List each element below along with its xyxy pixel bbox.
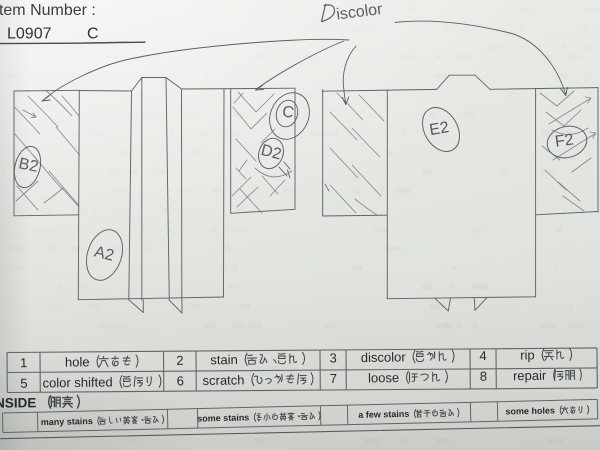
svg-text:093: 093 (422, 284, 433, 291)
svg-text:280: 280 (16, 112, 27, 119)
svg-text:5140: 5140 (72, 208, 87, 215)
svg-text:431: 431 (2, 265, 13, 272)
svg-text:1: 1 (65, 54, 69, 61)
svg-text:08: 08 (79, 265, 87, 272)
svg-text:1222: 1222 (324, 131, 339, 138)
svg-text:116: 116 (198, 131, 209, 138)
svg-text:D2: D2 (259, 142, 283, 163)
svg-text:1803: 1803 (107, 169, 122, 176)
svg-text:some stains: some stains (197, 412, 249, 423)
svg-text:5: 5 (170, 150, 174, 157)
svg-text:9: 9 (562, 45, 566, 52)
svg-text:004: 004 (464, 112, 475, 119)
svg-text:1276: 1276 (457, 54, 472, 61)
svg-text:8017: 8017 (156, 169, 171, 176)
svg-text:834: 834 (44, 227, 55, 234)
svg-text:559: 559 (107, 54, 118, 61)
svg-text:8375: 8375 (436, 438, 451, 445)
svg-text:6283: 6283 (548, 438, 563, 445)
svg-text:0: 0 (359, 265, 363, 272)
svg-text:47: 47 (499, 169, 507, 176)
svg-text:634: 634 (254, 438, 265, 445)
svg-text:61: 61 (93, 208, 101, 215)
svg-text:9: 9 (450, 284, 454, 291)
svg-text:Item Number :: Item Number : (0, 2, 96, 19)
svg-text:INSIDE: INSIDE (0, 395, 36, 410)
svg-text:A2: A2 (93, 244, 116, 265)
svg-text:72: 72 (233, 131, 241, 138)
svg-text:33: 33 (79, 284, 87, 291)
svg-text:2: 2 (569, 304, 573, 311)
svg-text:1: 1 (20, 355, 27, 370)
svg-text:170: 170 (191, 304, 202, 311)
svg-text:96: 96 (93, 92, 101, 99)
svg-text:47: 47 (51, 246, 59, 253)
svg-text:8: 8 (135, 169, 139, 176)
svg-text:discolor: discolor (361, 349, 407, 365)
svg-text:5075: 5075 (303, 54, 318, 61)
svg-text:hole: hole (65, 354, 90, 369)
svg-text:7183: 7183 (86, 304, 101, 311)
svg-text:26: 26 (555, 227, 563, 234)
svg-text:5: 5 (2, 169, 6, 176)
svg-text:811: 811 (401, 188, 412, 195)
svg-text:656: 656 (569, 54, 580, 61)
svg-text:516: 516 (324, 323, 335, 330)
svg-text:F2: F2 (554, 131, 575, 150)
svg-text:B2: B2 (17, 155, 40, 176)
svg-text:a few stains: a few stains (358, 409, 409, 420)
svg-text:9: 9 (177, 265, 181, 272)
svg-text:42: 42 (121, 188, 129, 195)
svg-text:0913: 0913 (583, 7, 598, 14)
svg-text:L0907: L0907 (7, 26, 52, 43)
svg-text:335: 335 (471, 227, 482, 234)
svg-text:8288: 8288 (128, 265, 143, 272)
svg-text:718: 718 (240, 304, 251, 311)
svg-text:55: 55 (352, 188, 360, 195)
svg-text:7617: 7617 (226, 284, 241, 291)
svg-text:2: 2 (401, 131, 405, 138)
svg-text:9868: 9868 (191, 150, 206, 157)
svg-text:87: 87 (429, 112, 437, 119)
svg-text:7: 7 (330, 371, 337, 386)
svg-text:6426: 6426 (114, 323, 129, 330)
svg-text:4628: 4628 (37, 208, 52, 215)
svg-text:7: 7 (240, 208, 244, 215)
svg-text:253: 253 (184, 112, 195, 119)
svg-text:13: 13 (401, 438, 409, 445)
svg-text:0342: 0342 (401, 54, 416, 61)
svg-text:74: 74 (450, 265, 458, 272)
svg-text:7: 7 (471, 150, 475, 157)
svg-text:color shifted: color shifted (42, 374, 112, 390)
svg-text:E2: E2 (428, 119, 450, 139)
svg-text:iscolor: iscolor (335, 1, 384, 24)
svg-text:C: C (87, 26, 99, 43)
svg-text:27: 27 (72, 438, 80, 445)
svg-text:821: 821 (443, 26, 454, 33)
svg-text:96: 96 (16, 265, 24, 272)
svg-text:289: 289 (156, 73, 167, 80)
svg-text:5: 5 (2, 92, 6, 99)
svg-text:989: 989 (422, 169, 433, 176)
svg-text:393: 393 (233, 112, 244, 119)
svg-text:651: 651 (205, 323, 216, 330)
svg-text:8612: 8612 (366, 438, 381, 445)
svg-text:82: 82 (387, 150, 395, 157)
svg-text:0: 0 (142, 227, 146, 234)
svg-text:73: 73 (72, 131, 80, 138)
svg-text:6131: 6131 (520, 7, 535, 14)
svg-text:72: 72 (583, 73, 591, 80)
svg-text:66: 66 (436, 54, 444, 61)
svg-text:8493: 8493 (9, 246, 24, 253)
svg-text:7774: 7774 (506, 92, 521, 99)
svg-text:8599: 8599 (135, 73, 150, 80)
svg-text:some holes: some holes (505, 405, 555, 416)
svg-text:81: 81 (366, 26, 374, 33)
svg-text:041: 041 (443, 323, 454, 330)
svg-text:4: 4 (479, 348, 486, 363)
svg-text:5: 5 (226, 246, 230, 253)
svg-text:0207: 0207 (100, 323, 115, 330)
svg-text:7: 7 (170, 131, 174, 138)
svg-text:91: 91 (373, 54, 381, 61)
svg-text:5444: 5444 (121, 438, 136, 445)
svg-text:847: 847 (51, 304, 62, 311)
svg-text:2: 2 (233, 265, 237, 272)
svg-text:7: 7 (555, 265, 559, 272)
svg-text:10: 10 (219, 265, 227, 272)
svg-text:scratch: scratch (202, 372, 244, 388)
svg-text:4: 4 (58, 284, 62, 291)
svg-text:8384: 8384 (541, 169, 556, 176)
svg-text:1748: 1748 (387, 246, 402, 253)
svg-text:0688: 0688 (569, 323, 584, 330)
svg-text:repair: repair (513, 368, 547, 384)
svg-text:055: 055 (233, 323, 244, 330)
svg-text:52: 52 (142, 246, 150, 253)
svg-text:stain: stain (210, 352, 238, 367)
svg-text:46: 46 (352, 26, 360, 33)
svg-text:34: 34 (471, 323, 479, 330)
svg-text:5: 5 (380, 188, 384, 195)
svg-text:32: 32 (212, 188, 220, 195)
svg-text:7: 7 (205, 73, 209, 80)
svg-text:loose: loose (368, 370, 399, 385)
svg-text:9754: 9754 (485, 45, 500, 52)
svg-text:95: 95 (93, 150, 101, 157)
svg-text:7868: 7868 (373, 227, 388, 234)
svg-text:5: 5 (562, 208, 566, 215)
svg-text:9: 9 (436, 304, 440, 311)
svg-text:9: 9 (583, 26, 587, 33)
svg-text:9: 9 (520, 26, 524, 33)
svg-text:014: 014 (114, 208, 125, 215)
svg-text:many stains: many stains (41, 416, 93, 427)
svg-text:8: 8 (480, 369, 487, 384)
svg-text:379: 379 (93, 131, 104, 138)
svg-text:8: 8 (212, 227, 216, 234)
svg-text:724: 724 (37, 265, 48, 272)
svg-text:44: 44 (9, 73, 17, 80)
svg-text:5: 5 (20, 376, 27, 391)
svg-text:974: 974 (254, 54, 265, 61)
svg-text:4: 4 (65, 246, 69, 253)
svg-text:9: 9 (163, 208, 167, 215)
svg-text:3: 3 (329, 350, 336, 365)
svg-text:rip: rip (520, 347, 535, 362)
svg-text:8535: 8535 (541, 323, 556, 330)
svg-text:4: 4 (457, 323, 461, 330)
svg-text:992: 992 (478, 284, 489, 291)
svg-text:875: 875 (583, 45, 594, 52)
svg-text:585: 585 (72, 246, 83, 253)
svg-text:3167: 3167 (177, 188, 192, 195)
svg-text:2: 2 (176, 353, 183, 368)
svg-text:148: 148 (142, 112, 153, 119)
svg-text:71: 71 (240, 227, 248, 234)
svg-text:C: C (281, 103, 296, 122)
svg-text:6: 6 (177, 373, 184, 388)
svg-text:51: 51 (464, 26, 472, 33)
svg-text:125: 125 (107, 188, 118, 195)
svg-text:1304: 1304 (247, 323, 262, 330)
svg-text:8: 8 (44, 438, 48, 445)
svg-text:4: 4 (9, 150, 13, 157)
svg-text:01: 01 (408, 7, 416, 14)
